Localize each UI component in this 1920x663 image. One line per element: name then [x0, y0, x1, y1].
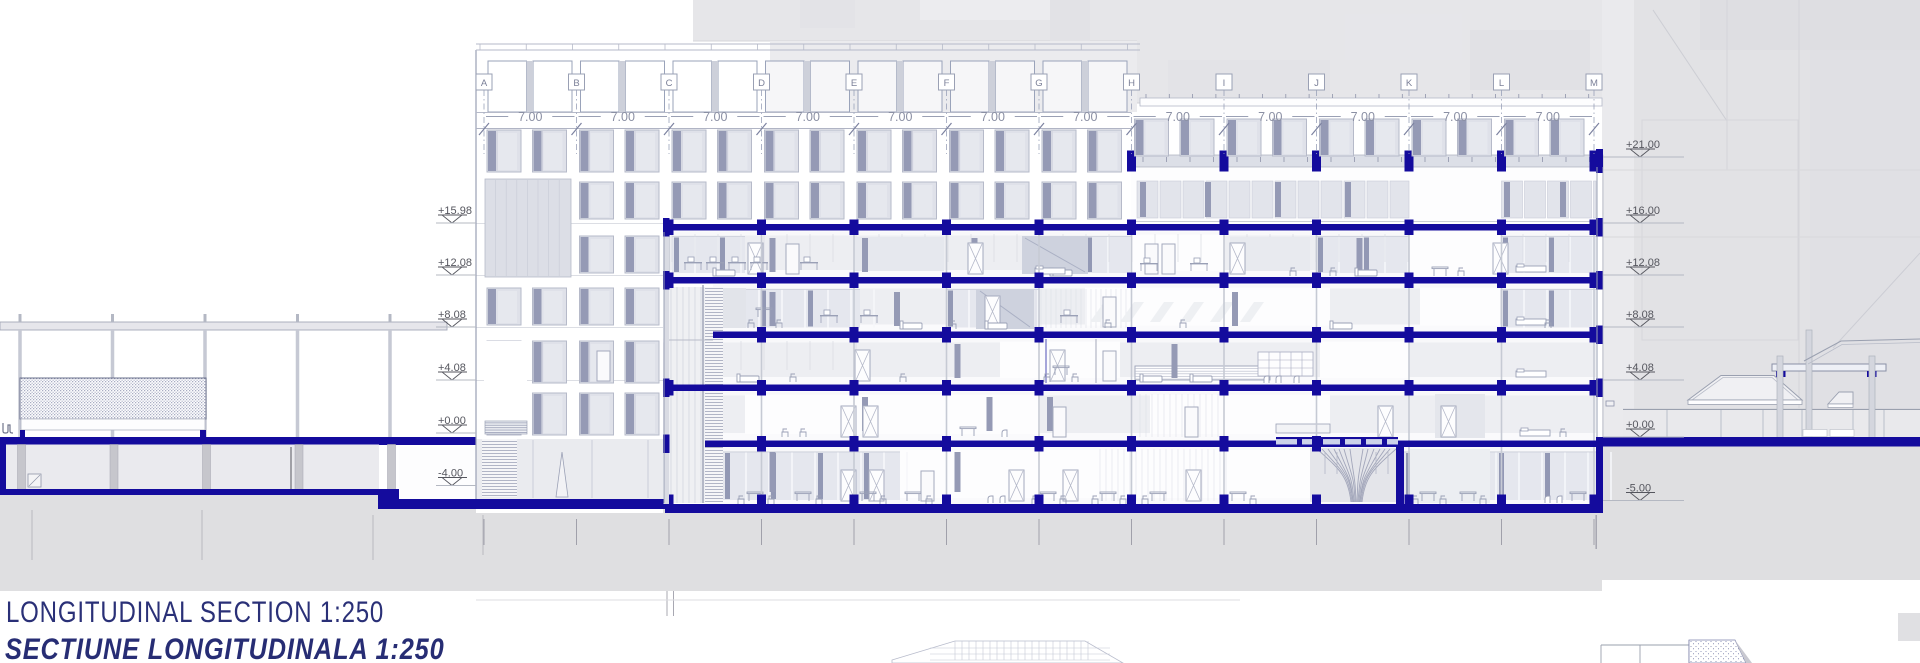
svg-text:SECTIUNE LONGITUDINALA 1:250: SECTIUNE LONGITUDINALA 1:250 [5, 632, 445, 663]
svg-text:LONGITUDINAL SECTION 1:250: LONGITUDINAL SECTION 1:250 [6, 596, 384, 629]
svg-text:H: H [1128, 78, 1135, 89]
svg-text:F: F [944, 78, 950, 89]
svg-text:7.00: 7.00 [1073, 110, 1097, 124]
svg-text:7.00: 7.00 [611, 110, 635, 124]
svg-text:7.00: 7.00 [981, 110, 1005, 124]
svg-text:7.00: 7.00 [703, 110, 727, 124]
svg-text:7.00: 7.00 [796, 110, 820, 124]
svg-text:L: L [1499, 78, 1504, 89]
svg-text:I: I [1223, 78, 1226, 89]
svg-text:D: D [758, 78, 765, 89]
svg-text:7.00: 7.00 [1536, 110, 1560, 124]
svg-text:G: G [1035, 78, 1042, 89]
svg-text:C: C [666, 78, 673, 89]
svg-text:7.00: 7.00 [1351, 110, 1375, 124]
svg-text:7.00: 7.00 [888, 110, 912, 124]
svg-text:B: B [573, 78, 579, 89]
svg-text:E: E [851, 78, 857, 89]
svg-text:7.00: 7.00 [1443, 110, 1467, 124]
svg-text:7.00: 7.00 [1166, 110, 1190, 124]
svg-text:K: K [1406, 78, 1413, 89]
svg-text:7.00: 7.00 [518, 110, 542, 124]
svg-text:J: J [1314, 78, 1319, 89]
svg-text:7.00: 7.00 [1258, 110, 1282, 124]
svg-text:A: A [481, 78, 488, 89]
svg-text:M: M [1590, 78, 1598, 89]
